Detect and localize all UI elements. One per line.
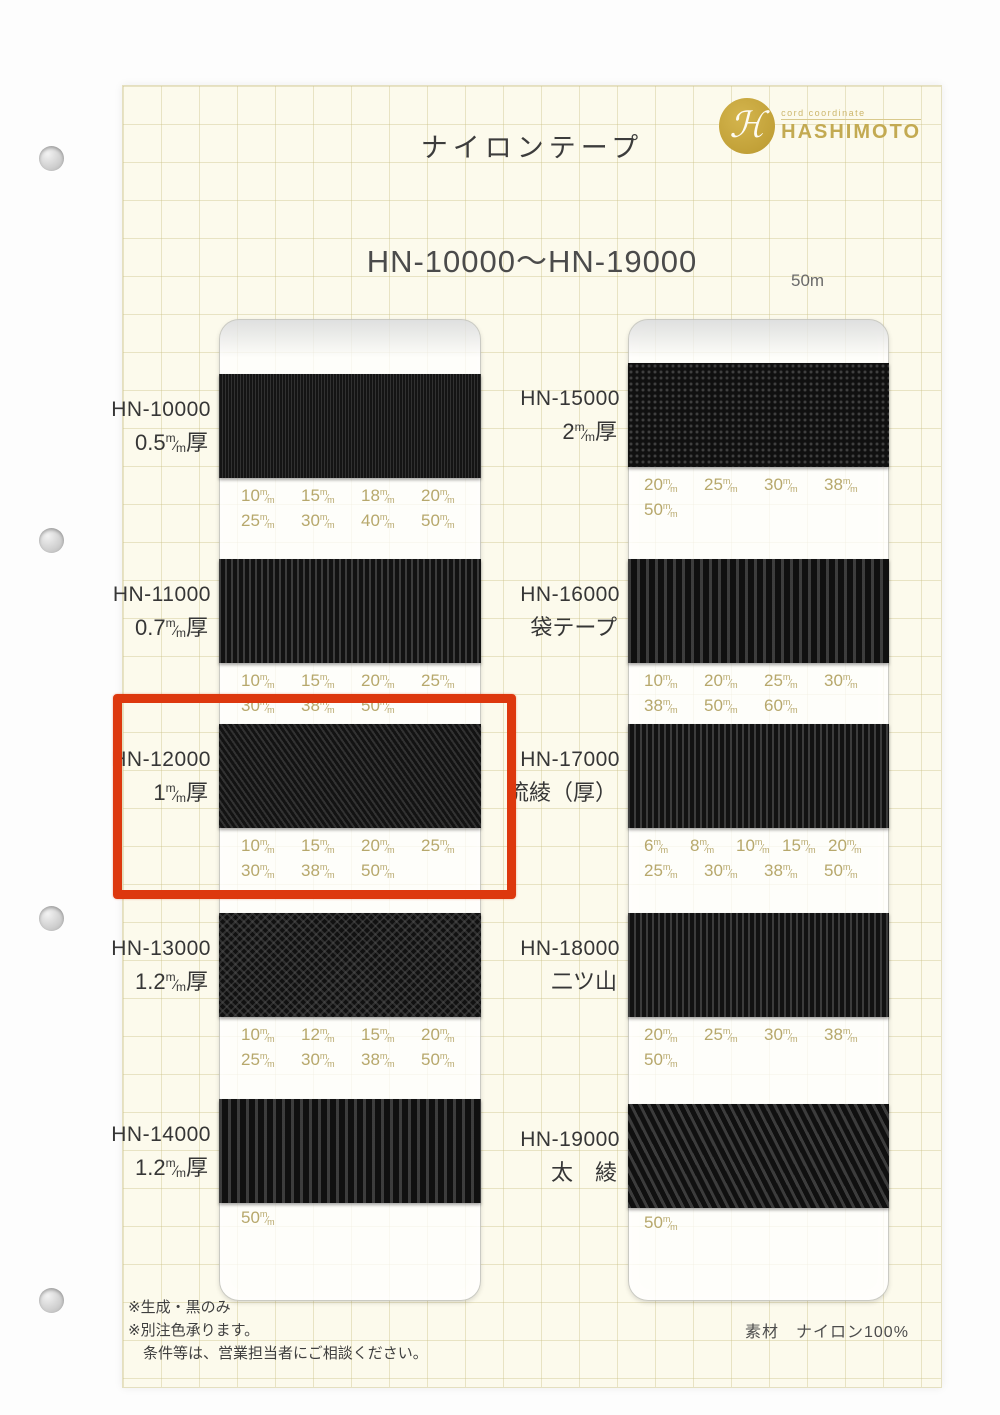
tape-swatch [219,913,481,1017]
binder-hole [39,528,64,553]
sample-spec: 0.5m⁄m厚 [43,425,211,457]
size-value: 38m⁄m [764,861,824,881]
size-value: 20m⁄m [421,1025,481,1045]
size-value: 50m⁄m [421,511,481,531]
size-value: 12m⁄m [301,1025,361,1045]
size-row: 10m⁄m12m⁄m15m⁄m20m⁄m [241,1025,473,1050]
tape-swatch [219,374,481,478]
size-value: 20m⁄m [704,671,764,691]
sample-code: HN-15000 [452,387,620,411]
sample-code: HN-18000 [452,937,620,961]
material-label: 素材 ナイロン100% [745,1318,909,1342]
size-value: 15m⁄m [301,486,361,506]
size-value: 50m⁄m [421,1050,481,1070]
size-value: 25m⁄m [764,671,824,691]
footnotes: ※生成・黒のみ ※別注色承ります。 条件等は、営業担当者にご相談ください。 [128,1296,428,1365]
size-value: 30m⁄m [301,1050,361,1070]
size-value: 15m⁄m [301,671,361,691]
size-value: 15m⁄m [361,1025,421,1045]
size-value: 20m⁄m [828,836,874,856]
sample-code: HN-11000 [43,583,211,607]
sample-label: HN-16000 袋テープ [452,583,620,642]
sample-code: HN-10000 [43,398,211,422]
size-value: 25m⁄m [704,475,764,495]
size-value: 38m⁄m [644,696,704,716]
size-value: 15m⁄m [782,836,828,856]
size-list: 20m⁄m25m⁄m30m⁄m38m⁄m50m⁄m [644,475,881,525]
size-row: 50m⁄m [644,500,881,525]
tape-swatch [628,913,889,1017]
size-row: 50m⁄m [644,1213,881,1238]
sample-spec: 太 綾 [452,1155,620,1187]
size-row: 6m⁄m8m⁄m10m⁄m15m⁄m20m⁄m [644,836,881,861]
size-value: 38m⁄m [824,475,884,495]
size-row: 20m⁄m25m⁄m30m⁄m38m⁄m [644,1025,881,1050]
footnote: ※生成・黒のみ [128,1296,428,1319]
size-value: 38m⁄m [361,1050,421,1070]
sample-label: HN-15000 2m⁄m厚 [452,387,620,446]
logo-name: HASHIMOTO [781,121,921,144]
size-value: 20m⁄m [644,475,704,495]
tape-swatch [628,724,889,828]
size-value: 25m⁄m [704,1025,764,1045]
sample-label: HN-10000 0.5m⁄m厚 [43,398,211,457]
hashimoto-logo-mark-icon: ℋ [719,98,775,154]
size-value: 6m⁄m [644,836,690,856]
size-value: 50m⁄m [644,1050,704,1070]
size-value: 50m⁄m [704,696,764,716]
sample-label: HN-13000 1.2m⁄m厚 [43,937,211,996]
sample-code: HN-16000 [452,583,620,607]
tape-swatch [219,559,481,663]
size-value: 20m⁄m [361,671,421,691]
size-value: 50m⁄m [824,861,884,881]
size-value: 10m⁄m [644,671,704,691]
tape-swatch [628,1104,889,1208]
sample-label: HN-14000 1.2m⁄m厚 [43,1123,211,1182]
sample-spec: 二ツ山 [452,964,620,996]
tape-swatch [628,559,889,663]
tape-swatch [628,363,889,467]
hashimoto-logo: ℋ cord coordinate HASHIMOTO [719,98,921,154]
sample-spec: 0.7m⁄m厚 [43,610,211,642]
size-list: 10m⁄m20m⁄m25m⁄m30m⁄m38m⁄m50m⁄m60m⁄m [644,671,881,721]
size-list: 10m⁄m12m⁄m15m⁄m20m⁄m25m⁄m30m⁄m38m⁄m50m⁄m [241,1025,473,1075]
size-value: 50m⁄m [644,500,704,520]
binder-hole [39,146,64,171]
size-value: 10m⁄m [241,486,301,506]
size-value: 25m⁄m [241,511,301,531]
size-row: 10m⁄m15m⁄m18m⁄m20m⁄m [241,486,473,511]
size-row: 25m⁄m30m⁄m38m⁄m50m⁄m [644,861,881,886]
binder-hole [39,1288,64,1313]
size-row: 20m⁄m25m⁄m30m⁄m38m⁄m [644,475,881,500]
tape-swatch [219,1099,481,1203]
size-value: 50m⁄m [241,1208,301,1228]
size-value: 10m⁄m [241,1025,301,1045]
sample-label: HN-18000 二ツ山 [452,937,620,996]
size-row: 50m⁄m [241,1208,473,1233]
size-value: 30m⁄m [764,1025,824,1045]
size-value: 30m⁄m [301,511,361,531]
sample-code: HN-13000 [43,937,211,961]
size-list: 20m⁄m25m⁄m30m⁄m38m⁄m50m⁄m [644,1025,881,1075]
size-value: 8m⁄m [690,836,736,856]
sample-spec: 1.2m⁄m厚 [43,1150,211,1182]
size-value: 18m⁄m [361,486,421,506]
size-value: 25m⁄m [241,1050,301,1070]
size-list: 6m⁄m8m⁄m10m⁄m15m⁄m20m⁄m25m⁄m30m⁄m38m⁄m50… [644,836,881,886]
size-value: 40m⁄m [361,511,421,531]
logo-text: cord coordinate HASHIMOTO [781,108,921,144]
sample-label: HN-11000 0.7m⁄m厚 [43,583,211,642]
size-value: 20m⁄m [644,1025,704,1045]
size-value: 25m⁄m [421,671,481,691]
binder-hole [39,906,64,931]
size-value: 60m⁄m [764,696,824,716]
size-value: 30m⁄m [764,475,824,495]
size-value: 30m⁄m [824,671,884,691]
sample-spec: 袋テープ [452,610,620,642]
size-row: 25m⁄m30m⁄m38m⁄m50m⁄m [241,1050,473,1075]
highlight-box-hn-12000 [113,694,516,899]
size-row: 50m⁄m [644,1050,881,1075]
size-row: 38m⁄m50m⁄m60m⁄m [644,696,881,721]
logo-tagline: cord coordinate [781,108,921,120]
size-value: 10m⁄m [241,671,301,691]
footnote: 条件等は、営業担当者にご相談ください。 [128,1342,428,1365]
sample-spec: 2m⁄m厚 [452,414,620,446]
scanned-catalog-sheet: ナイロンテープ ℋ cord coordinate HASHIMOTO HN-1… [0,0,1000,1415]
size-row: 25m⁄m30m⁄m40m⁄m50m⁄m [241,511,473,536]
size-value: 38m⁄m [824,1025,884,1045]
size-value: 20m⁄m [421,486,481,506]
size-row: 10m⁄m15m⁄m20m⁄m25m⁄m [241,671,473,696]
sample-code: HN-19000 [452,1128,620,1152]
sample-spec: 1.2m⁄m厚 [43,964,211,996]
size-value: 25m⁄m [644,861,704,881]
size-value: 10m⁄m [736,836,782,856]
roll-length-label: 50m [791,271,824,291]
size-list: 10m⁄m15m⁄m18m⁄m20m⁄m25m⁄m30m⁄m40m⁄m50m⁄m [241,486,473,536]
footnote: ※別注色承ります。 [128,1319,428,1342]
size-value: 30m⁄m [704,861,764,881]
sample-label: HN-19000 太 綾 [452,1128,620,1187]
size-row: 10m⁄m20m⁄m25m⁄m30m⁄m [644,671,881,696]
catalog-page: ナイロンテープ ℋ cord coordinate HASHIMOTO HN-1… [122,85,942,1388]
size-value: 50m⁄m [644,1213,704,1233]
sample-code: HN-14000 [43,1123,211,1147]
